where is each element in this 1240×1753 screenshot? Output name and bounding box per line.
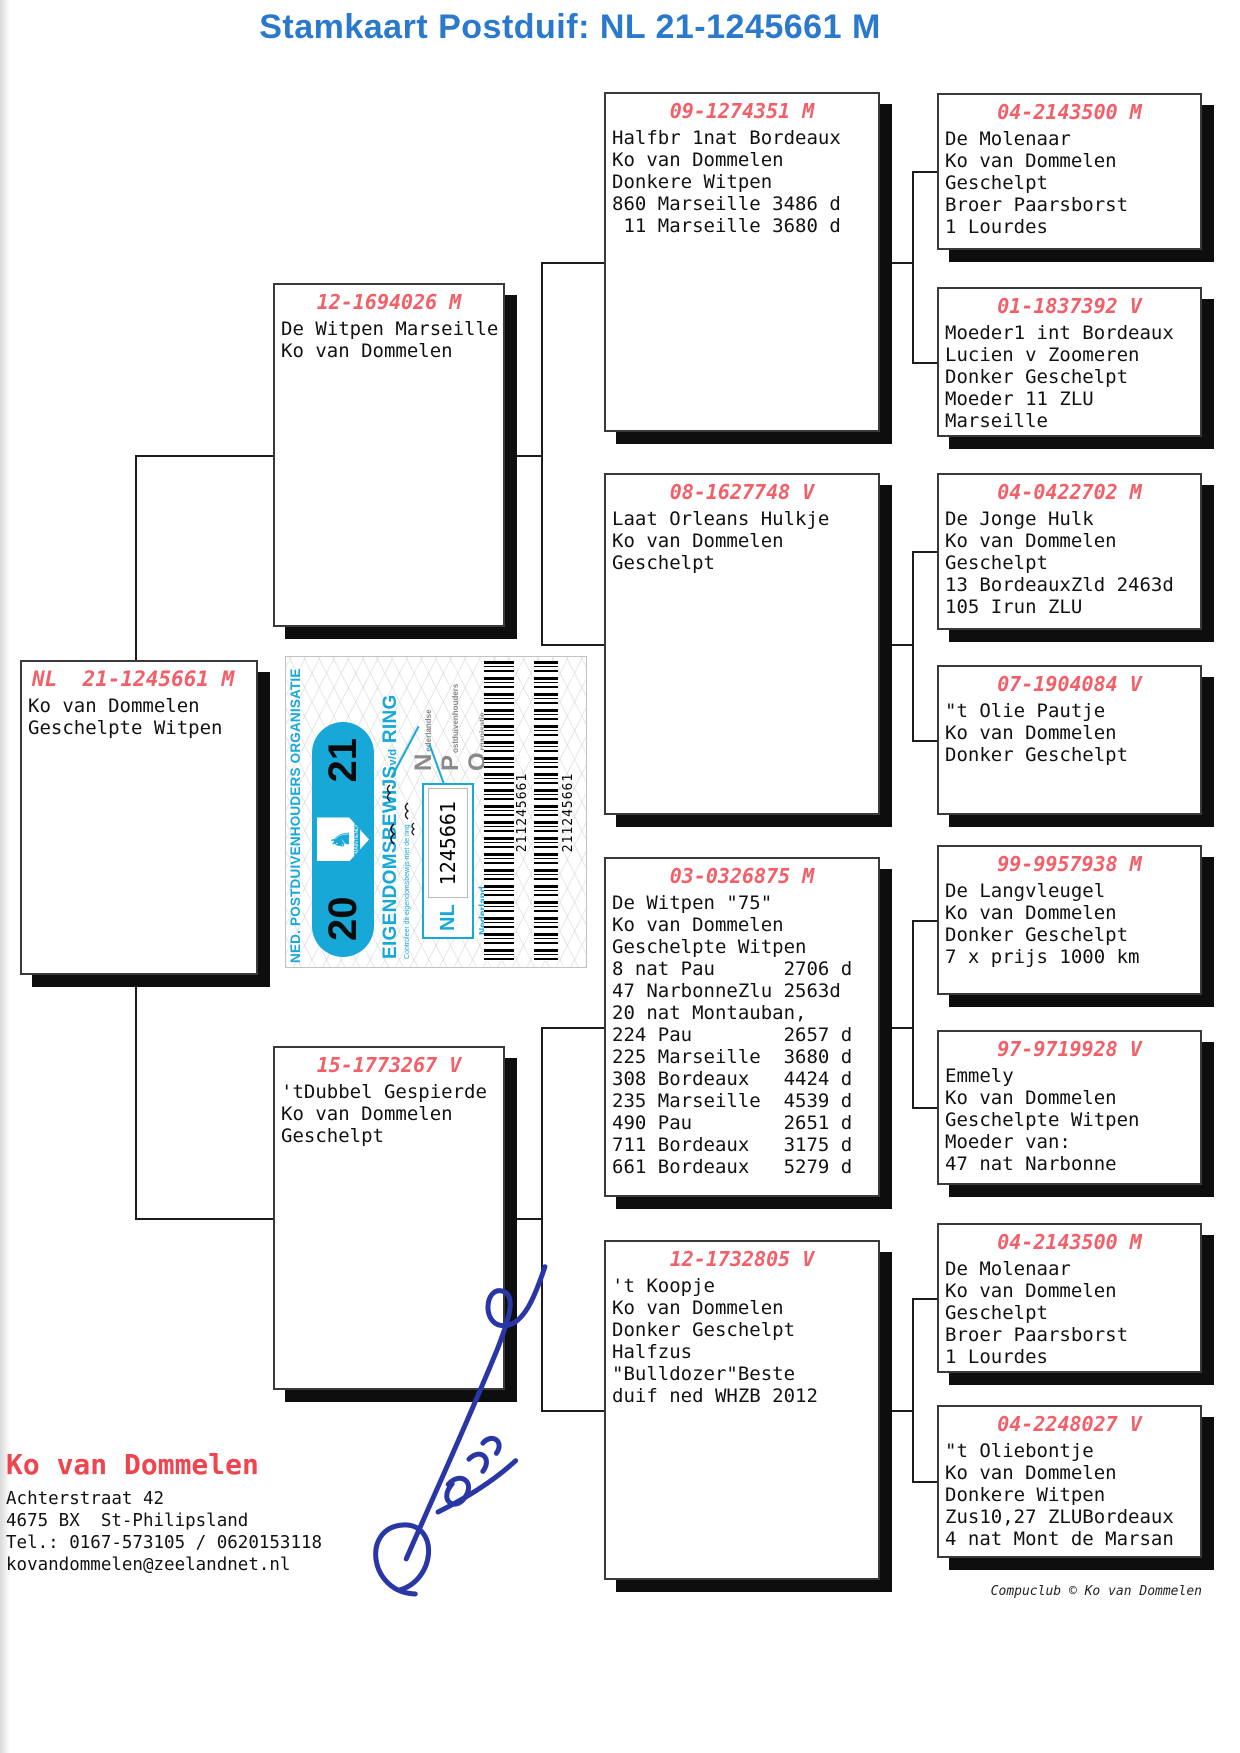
connector-line <box>912 171 914 364</box>
ring-number: 03-0326875 M <box>606 859 878 890</box>
pedigree-lines: "t Oliebontje Ko van Dommelen Donkere Wi… <box>939 1438 1200 1552</box>
connector-line <box>135 455 275 457</box>
ring-id-box: NL 1245661 <box>422 783 474 939</box>
connector-line <box>912 920 939 922</box>
pedigree-box-grandsire-1: 09-1274351 M Halfbr 1nat Bordeaux Ko van… <box>604 92 880 432</box>
ring-number: 04-2143500 M <box>939 1225 1200 1256</box>
connector-line <box>912 551 939 553</box>
ring-number: 01-1837392 V <box>939 289 1200 320</box>
pedigree-box-grandsire-2: 03-0326875 M De Witpen "75" Ko van Domme… <box>604 857 880 1197</box>
pedigree-box-granddam-1: 08-1627748 V Laat Orleans Hulkje Ko van … <box>604 473 880 815</box>
ring-number: 04-0422702 M <box>939 475 1200 506</box>
pedigree-box-granddam-2: 12-1732805 V 't Koopje Ko van Dommelen D… <box>604 1240 880 1580</box>
connector-line <box>541 262 606 264</box>
pedigree-lines: De Jonge Hulk Ko van Dommelen Geschelpt … <box>939 506 1200 620</box>
ring-number: 99-9957938 M <box>939 847 1200 878</box>
connector-line <box>912 920 914 1109</box>
ring-number-value: 1245661 <box>428 788 468 898</box>
connector-line <box>912 551 914 742</box>
ring-number: 04-2248027 V <box>939 1407 1200 1438</box>
barcode <box>534 661 558 961</box>
ring-number: 04-2143500 M <box>939 95 1200 126</box>
pedigree-box-ggp-6: 97-9719928 V Emmely Ko van Dommelen Gesc… <box>937 1030 1202 1185</box>
pedigree-box-subject: NL 21-1245661 M Ko van Dommelen Geschelp… <box>20 660 258 975</box>
pedigree-lines: "t Olie Pautje Ko van Dommelen Donker Ge… <box>939 698 1200 768</box>
ring-number: 97-9719928 V <box>939 1032 1200 1063</box>
connector-line <box>912 740 939 742</box>
country-code: NL <box>437 904 460 931</box>
year-right: 21 <box>321 738 366 783</box>
pedigree-lines: De Witpen Marseille Ko van Dommelen <box>275 316 503 364</box>
pedigree-lines: De Langvleugel Ko van Dommelen Donker Ge… <box>939 878 1200 970</box>
connector-line <box>505 1218 543 1220</box>
pedigree-lines: Laat Orleans Hulkje Ko van Dommelen Gesc… <box>606 506 878 576</box>
connector-line <box>541 262 543 646</box>
pedigree-box-ggp-5: 99-9957938 M De Langvleugel Ko van Domme… <box>937 845 1202 995</box>
npo-letters: Nederlandse Postduivenhouders Organisati… <box>410 659 491 771</box>
pedigree-lines: De Molenaar Ko van Dommelen Geschelpt Br… <box>939 1256 1200 1370</box>
pedigree-box-ggp-4: 07-1904084 V "t Olie Pautje Ko van Domme… <box>937 665 1202 815</box>
barcode-text: 211245661 <box>562 772 577 851</box>
connector-line <box>912 1298 939 1300</box>
signature-ink <box>330 1248 620 1598</box>
connector-line <box>912 1107 939 1109</box>
ring-number: 12-1694026 M <box>275 285 503 316</box>
pedigree-box-ggp-1: 04-2143500 M De Molenaar Ko van Dommelen… <box>937 93 1202 250</box>
ring-number: 12-1732805 V <box>606 1242 878 1273</box>
npo-initial: P <box>437 755 465 771</box>
connector-line <box>880 1410 914 1412</box>
pedigree-lines: Halfbr 1nat Bordeaux Ko van Dommelen Don… <box>606 125 878 239</box>
title-end: RING <box>380 694 401 743</box>
year-left: 20 <box>321 897 366 942</box>
pedigree-lines: 'tDubbel Gespierde Ko van Dommelen Gesch… <box>275 1079 503 1149</box>
pedigree-box-sire: 12-1694026 M De Witpen Marseille Ko van … <box>273 283 505 627</box>
pedigree-box-ggp-2: 01-1837392 V Moeder1 int Bordeaux Lucien… <box>937 287 1202 437</box>
ring-number: NL 21-1245661 M <box>22 662 256 693</box>
connector-line <box>135 1218 275 1220</box>
pedigree-box-ggp-8: 04-2248027 V "t Oliebontje Ko van Dommel… <box>937 1405 1202 1558</box>
connector-line <box>912 1298 914 1483</box>
bird-silhouettes-icon <box>382 779 422 849</box>
lion-glyph: ♞ <box>326 831 354 848</box>
pedigree-box-ggp-7: 04-2143500 M De Molenaar Ko van Dommelen… <box>937 1223 1202 1373</box>
barcode-digits: 211245661 <box>561 657 577 967</box>
npo-word: ostduivenhouders <box>451 684 460 753</box>
motto-banner: JE MAINTIENDRAI <box>354 816 360 863</box>
pedigree-lines: De Witpen "75" Ko van Dommelen Geschelpt… <box>606 890 878 1180</box>
software-credit: Compuclub © Ko van Dommelen <box>937 1584 1202 1599</box>
barcode-digits: 211245661 <box>515 657 531 967</box>
pedigree-lines: Moeder1 int Bordeaux Lucien v Zoomeren D… <box>939 320 1200 434</box>
barcode-text: 211245661 <box>516 772 531 851</box>
ring-number: 09-1274351 M <box>606 94 878 125</box>
pedigree-lines: Emmely Ko van Dommelen Geschelpte Witpen… <box>939 1063 1200 1177</box>
connector-line <box>541 1027 606 1029</box>
connector-line <box>912 362 939 364</box>
page-title: Stamkaart Postduif: NL 21-1245661 M <box>70 8 1070 47</box>
ring-number: 15-1773267 V <box>275 1048 503 1079</box>
year-pill: 20 ♞ JE MAINTIENDRAI 21 <box>312 722 374 957</box>
barcode <box>484 661 514 961</box>
connector-line <box>880 262 914 264</box>
connector-line <box>880 644 914 646</box>
pedigree-lines: Ko van Dommelen Geschelpte Witpen <box>22 693 256 741</box>
owner-name: Ko van Dommelen <box>6 1448 259 1481</box>
pedigree-lines: 't Koopje Ko van Dommelen Donker Geschel… <box>606 1273 878 1409</box>
ring-number: 07-1904084 V <box>939 667 1200 698</box>
pedigree-lines: De Molenaar Ko van Dommelen Geschelpt Br… <box>939 126 1200 240</box>
connector-line <box>880 1027 914 1029</box>
connector-line <box>541 644 606 646</box>
ownership-certificate: NED. POSTDUIVENHOUDERS ORGANISATIE 20 ♞ … <box>285 656 587 968</box>
connector-line <box>912 171 939 173</box>
pedigree-box-ggp-3: 04-0422702 M De Jonge Hulk Ko van Dommel… <box>937 473 1202 630</box>
lion-emblem-icon: ♞ JE MAINTIENDRAI <box>317 818 369 862</box>
ring-number: 08-1627748 V <box>606 475 878 506</box>
certificate-org-text: NED. POSTDUIVENHOUDERS ORGANISATIE <box>288 657 303 963</box>
connector-line <box>912 1481 939 1483</box>
owner-address: Achterstraat 42 4675 BX St-Philipsland T… <box>6 1488 322 1576</box>
connector-line <box>505 455 543 457</box>
